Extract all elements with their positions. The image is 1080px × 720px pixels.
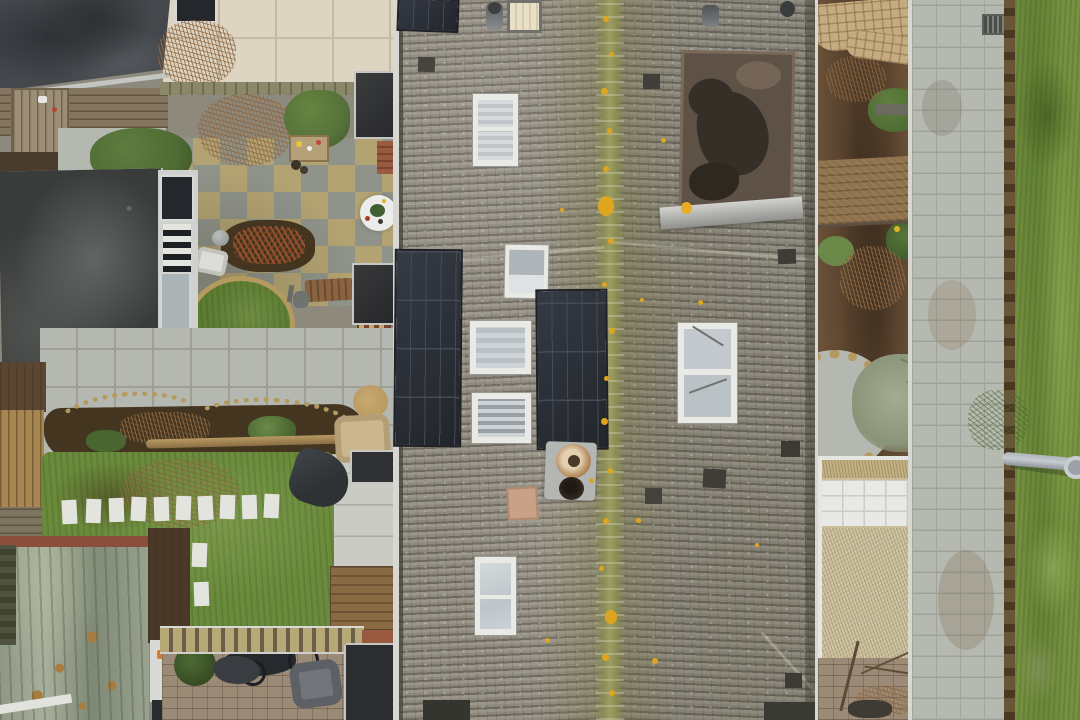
aerial-photo-scene: [0, 0, 1080, 720]
bare-shrub: [840, 246, 906, 310]
lichen-dot: [609, 328, 615, 334]
lichen-dot: [652, 658, 658, 664]
lichen-dot: [545, 638, 550, 643]
lichen-dot: [602, 282, 607, 287]
round-wood-table: [353, 385, 388, 418]
stepping-stone: [154, 497, 170, 522]
grass-light-patch: [1026, 520, 1078, 616]
rear-extension-roof: [354, 265, 396, 323]
skylight-window: [475, 557, 516, 635]
brown-fern: [233, 226, 305, 264]
table-plant: [370, 204, 385, 217]
lichen-dot: [640, 298, 644, 302]
roof-vent-square: [703, 468, 727, 488]
stepping-stone: [220, 495, 236, 520]
grey-pot: [293, 291, 309, 308]
solar-array-mid: [537, 291, 606, 449]
rear-extension-roof: [356, 73, 396, 137]
fence-tan: [0, 410, 44, 509]
grass-overhang-sprigs: [968, 390, 1028, 450]
lichen-dot: [603, 166, 609, 172]
stepping-stone: [194, 582, 210, 607]
front-garden-area: [818, 0, 1080, 720]
flower-red: [316, 140, 321, 145]
skylight-glass: [509, 250, 544, 276]
stepping-stone: [192, 543, 208, 568]
eave-dark-band: [423, 700, 470, 720]
sidewalk-stain: [938, 550, 994, 650]
mossy-garage-roof: [0, 547, 149, 720]
chimney-cap-hole: [568, 455, 580, 467]
lichen-dot: [603, 16, 609, 22]
dark-debris: [848, 700, 892, 718]
wooden-bench: [304, 278, 353, 302]
lichen-patch-large: [598, 196, 614, 216]
sidewalk-stain: [922, 80, 962, 136]
gravel-band: [822, 460, 908, 478]
lichen-dot: [560, 208, 564, 212]
bed-green-plant: [86, 430, 126, 452]
stepping-stone: [86, 499, 102, 524]
bare-shrub-top: [158, 20, 236, 86]
pergola-slats: [160, 626, 364, 654]
roof-vent-square: [643, 74, 660, 89]
table-item-dark: [378, 219, 383, 224]
lichen-dot: [599, 566, 604, 571]
stepping-stone: [263, 494, 279, 519]
glass-door: [162, 274, 189, 328]
tile-repair-tan: [506, 486, 539, 521]
lichen-dot: [755, 543, 759, 547]
lichen-dot: [636, 518, 641, 523]
lichen-dot: [607, 128, 612, 134]
roof-vent-square: [645, 488, 662, 504]
bare-shrub-mid: [198, 94, 294, 166]
lichen-dot: [609, 690, 615, 696]
center-pitched-roof: [393, 0, 822, 720]
repair-light-streak: [736, 61, 781, 90]
eave-dark-band: [764, 702, 815, 720]
white-skylight-tiles: [822, 480, 908, 526]
striped-stairs: [163, 224, 191, 272]
terracotta-wall-top: [362, 630, 396, 644]
roof-vent-square: [418, 57, 436, 73]
flower-white: [307, 146, 312, 151]
stepping-stone: [130, 497, 146, 522]
lichen-dot: [661, 138, 666, 143]
roof-vent-square: [778, 249, 797, 265]
stepping-stone: [176, 496, 192, 521]
flower-dot-yellow: [894, 226, 900, 232]
roof-vent-cap: [488, 2, 501, 14]
roof-vent-round: [780, 1, 795, 17]
rear-extension-roof: [346, 645, 397, 720]
dormer-window: [162, 177, 192, 219]
fence-dark-brown: [0, 362, 46, 412]
house-window-top: [177, 0, 215, 21]
rear-extension-roof: [352, 452, 397, 482]
lichen-dot: [698, 300, 703, 305]
skylight-bar: [478, 127, 513, 131]
stepping-stone: [197, 496, 213, 521]
grass-dark-patch: [1018, 60, 1076, 170]
bike-tarp: [214, 656, 260, 684]
flower-yellow: [296, 141, 302, 147]
solar-array-left: [395, 251, 461, 446]
louvre-slats: [478, 399, 525, 437]
table-item-yellow: [382, 199, 386, 203]
slatted-planter: [331, 567, 393, 629]
small-skylight: [510, 3, 539, 30]
repair-dark-blob: [689, 162, 740, 201]
roof-vent-square: [785, 673, 802, 688]
grass-worn-patch: [1016, 636, 1060, 706]
deck-object-red: [52, 107, 57, 112]
lichen-dot: [603, 518, 609, 524]
deck-object-white: [38, 96, 47, 103]
fence-strip-dark: [0, 545, 16, 645]
roof-repair-patch: [679, 50, 796, 214]
lichen-patch-large: [681, 202, 692, 214]
patio-chair: [288, 658, 344, 711]
roof-vent-square: [781, 441, 800, 457]
stone-sphere: [212, 230, 229, 246]
skylight-window: [470, 321, 531, 374]
stepping-stone: [109, 498, 125, 523]
lichen-dot: [608, 468, 613, 474]
lichen-dot: [601, 88, 608, 95]
stepping-stone: [242, 495, 258, 520]
roof-vent-stack: [702, 5, 719, 27]
skylight-glass: [684, 375, 731, 417]
skylight-bar: [480, 595, 511, 599]
sidewalk-stain: [928, 280, 976, 350]
solar-panel-top: [398, 0, 457, 31]
plant-pot: [300, 166, 308, 174]
skylight-window-right: [678, 323, 737, 423]
louvre-vent: [472, 393, 531, 443]
right-eave-shadow: [805, 0, 815, 720]
lichen-dot: [604, 376, 609, 381]
vent-pipe: [559, 477, 584, 500]
lichen-dot: [609, 52, 614, 57]
bare-shrub: [826, 56, 886, 102]
lichen-dot: [589, 478, 594, 483]
lichen-dot: [601, 418, 608, 425]
lichen-patch-large: [605, 610, 617, 624]
table-item-red: [365, 216, 370, 221]
soil-path: [0, 152, 58, 172]
lichen-dot: [608, 238, 614, 244]
lichen-dot: [602, 654, 609, 661]
stepping-stone: [61, 500, 77, 525]
skylight-glass: [476, 327, 525, 368]
skylight-window: [473, 94, 518, 166]
